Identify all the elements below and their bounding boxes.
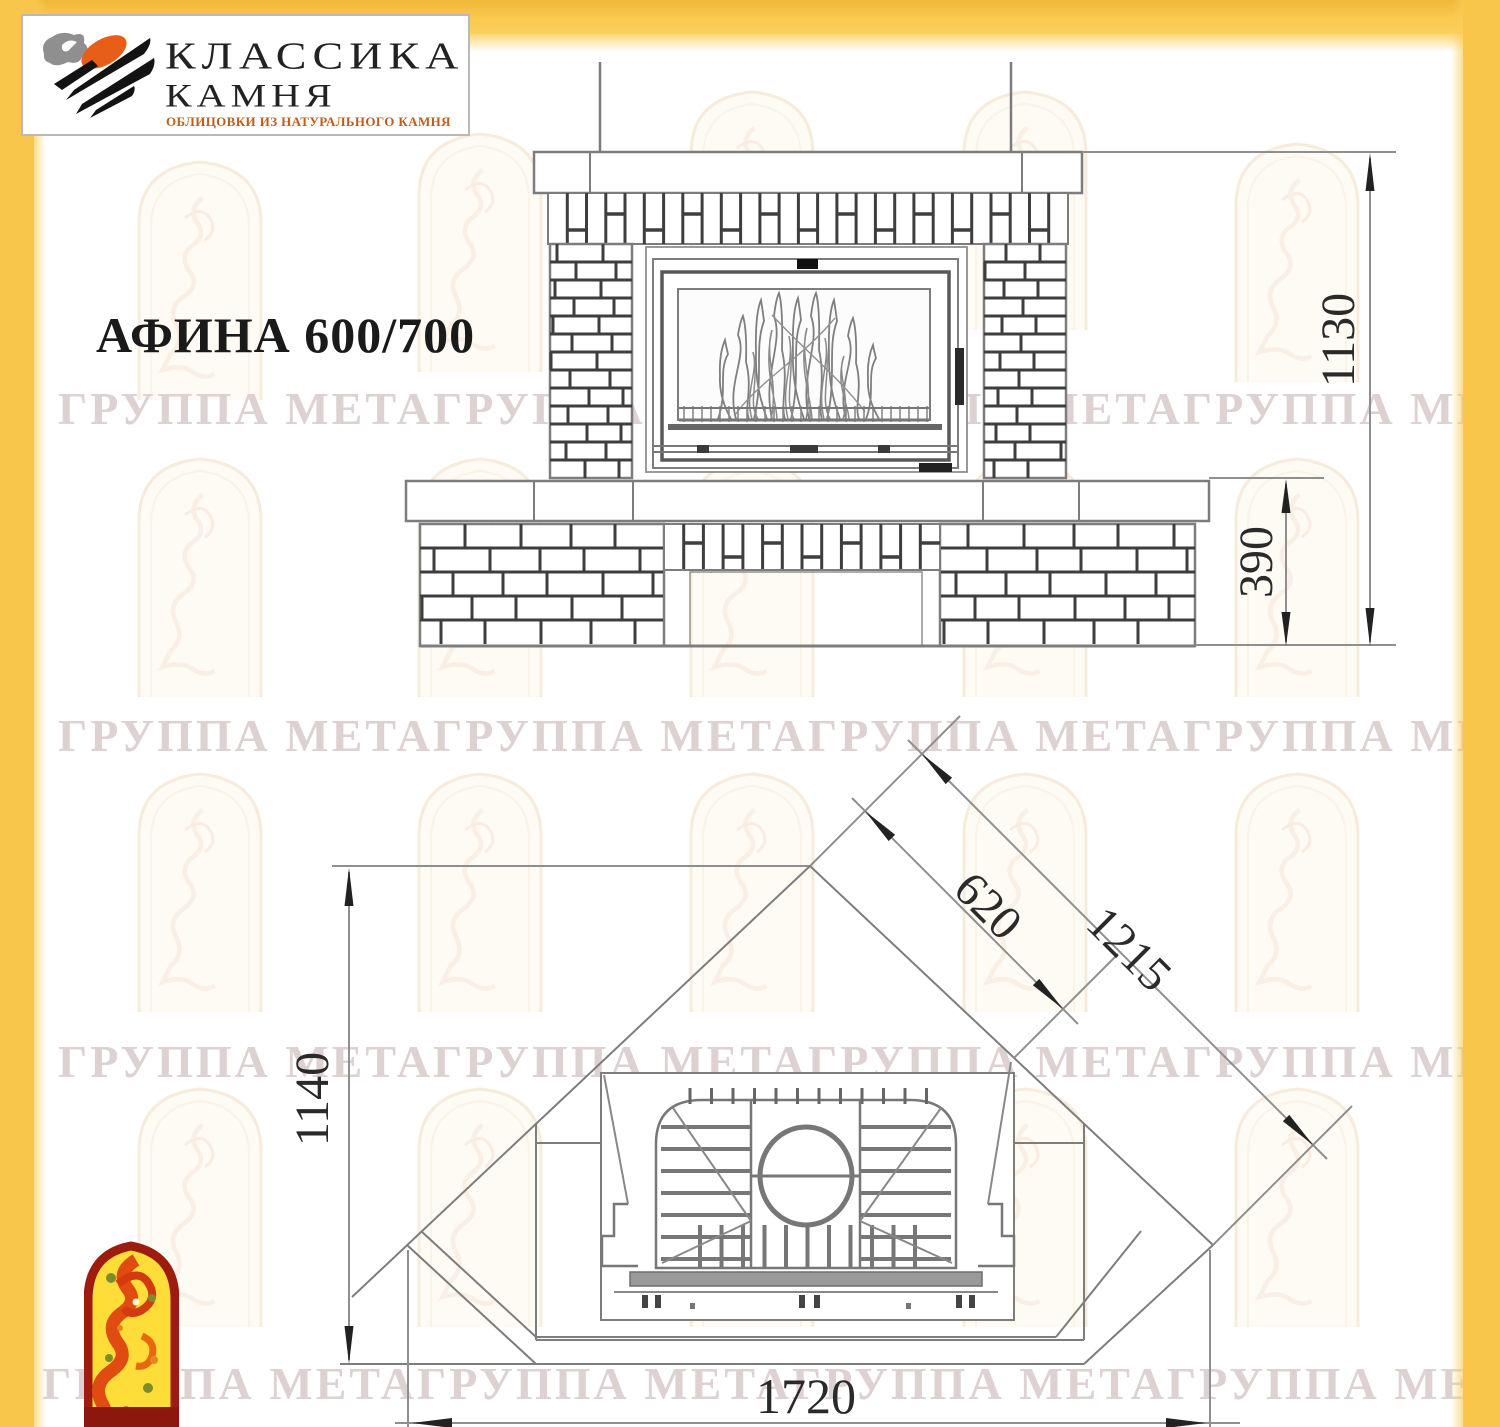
svg-text:1215: 1215 bbox=[1076, 896, 1181, 1001]
svg-text:620: 620 bbox=[944, 862, 1032, 950]
svg-text:1130: 1130 bbox=[1312, 293, 1365, 387]
svg-text:1140: 1140 bbox=[286, 1052, 339, 1146]
svg-text:390: 390 bbox=[1230, 526, 1283, 598]
svg-text:1720: 1720 bbox=[756, 1368, 856, 1424]
